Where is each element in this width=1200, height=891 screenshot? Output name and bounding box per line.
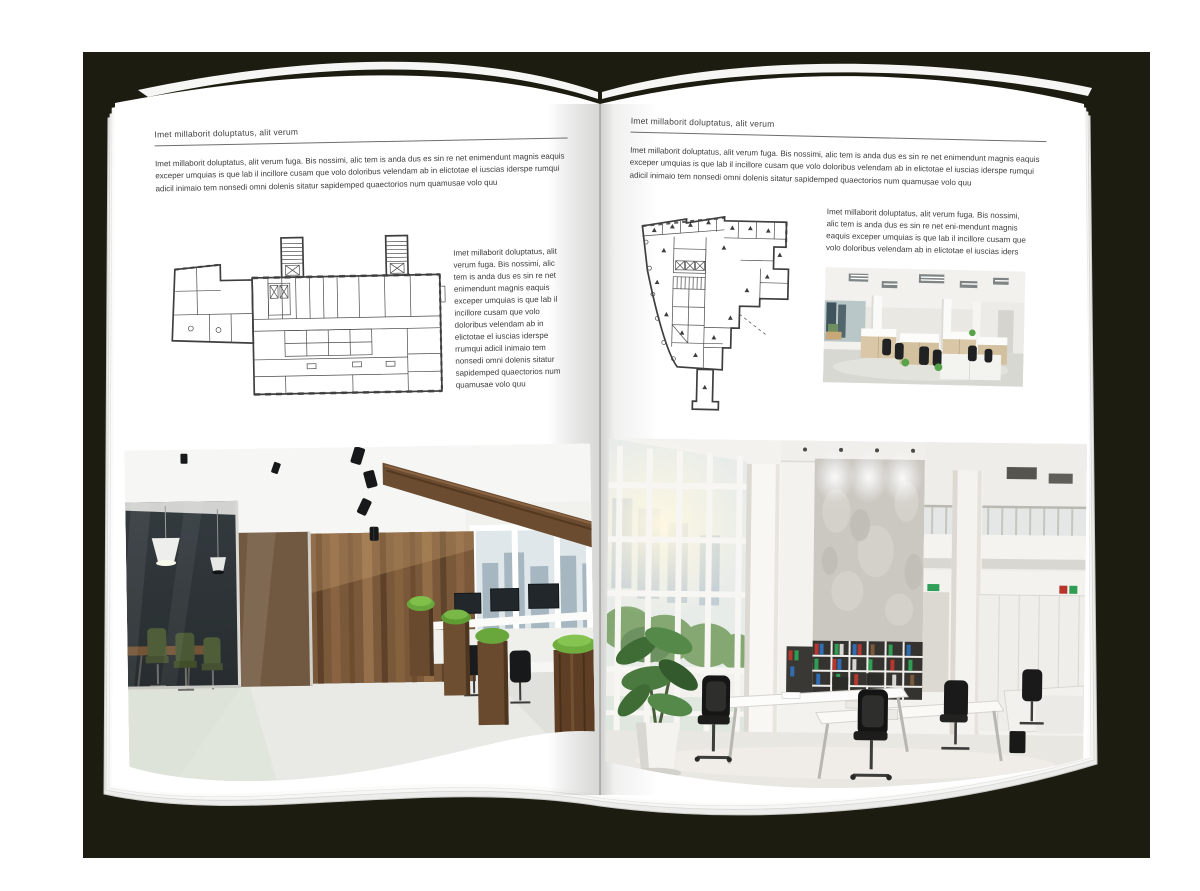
left-side-text: Imet millaborit doluptatus, alit verum f…	[453, 246, 572, 392]
right-plan-row: Imet millaborit doluptatus, alit verum f…	[624, 202, 1045, 419]
right-side-text: Imet millaborit doluptatus, alit verum f…	[826, 206, 1032, 259]
photo-wood-glass-office	[124, 443, 595, 792]
left-plan-row: Imet millaborit doluptatus, alit verum f…	[156, 212, 572, 404]
left-intro-paragraph: Imet millaborit doluptatus, alit verum f…	[155, 150, 569, 195]
photo-open-plan-office	[823, 266, 1026, 388]
floor-plan-irregular	[624, 202, 811, 414]
right-page-content: Imet millaborit doluptatus, alit verum I…	[598, 89, 1087, 420]
brochure-mockup-scene: Imet millaborit doluptatus, alit verum I…	[0, 0, 1200, 891]
right-column: Imet millaborit doluptatus, alit verum f…	[823, 206, 1032, 388]
right-intro-paragraph: Imet millaborit doluptatus, alit verum f…	[629, 145, 1046, 192]
floor-plan-wide	[156, 214, 448, 404]
left-page-header: Imet millaborit doluptatus, alit verum	[154, 121, 567, 139]
left-header-rule	[155, 137, 568, 146]
photo-bright-loft-office	[605, 438, 1087, 794]
door-symbols	[648, 219, 783, 391]
left-page-content: Imet millaborit doluptatus, alit verum I…	[117, 95, 601, 404]
